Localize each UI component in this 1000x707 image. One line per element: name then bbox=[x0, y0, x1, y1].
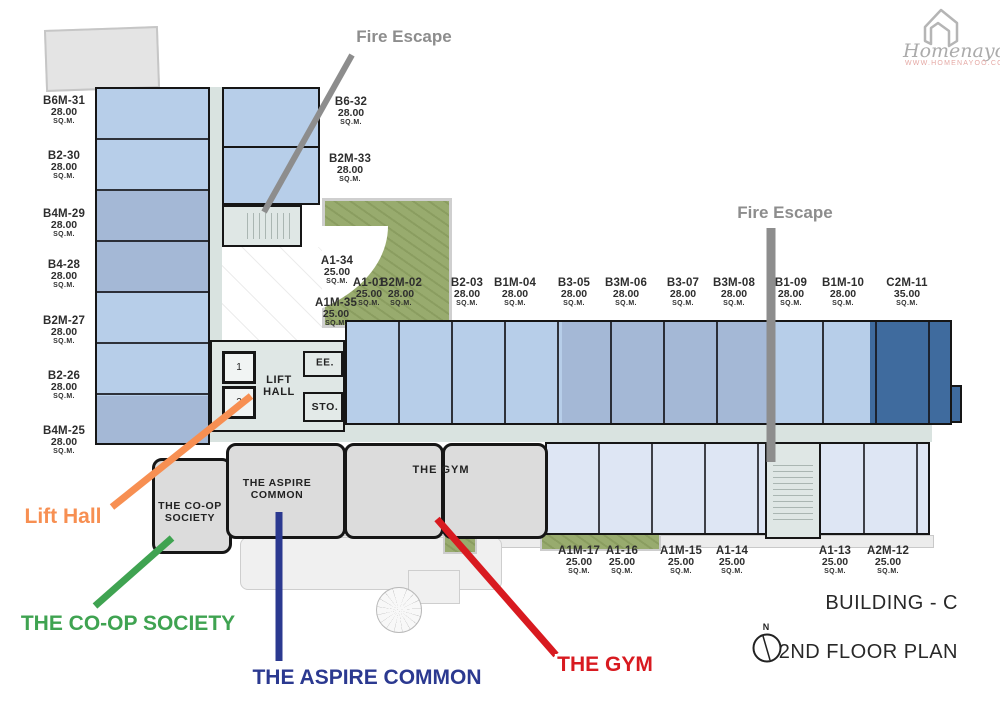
unit-sqm: SQ.M. bbox=[716, 568, 748, 576]
unit-label: B1M-1028.00SQ.M. bbox=[822, 277, 864, 308]
building-title: BUILDING - C bbox=[758, 592, 958, 615]
compass-n-label: N bbox=[763, 622, 770, 632]
unit-label: A1-1325.00SQ.M. bbox=[819, 545, 851, 576]
annotation-coop-society: THE CO-OP SOCIETY bbox=[21, 612, 235, 636]
dark-unit-stub bbox=[950, 385, 962, 423]
unit-label: B1M-0428.00SQ.M. bbox=[494, 277, 536, 308]
lift-hall-label: LIFT HALL bbox=[263, 374, 295, 398]
unit-label: B2-2628.00SQ.M. bbox=[48, 370, 80, 401]
annotation-aspire-common: THE ASPIRE COMMON bbox=[252, 666, 481, 690]
coop-society-label: THE CO-OP SOCIETY bbox=[158, 500, 222, 524]
unit-label: B3-0528.00SQ.M. bbox=[558, 277, 590, 308]
unit-area: 25.00 bbox=[321, 267, 353, 278]
unit-area: 25.00 bbox=[558, 557, 600, 568]
unit-label: B4-2828.00SQ.M. bbox=[48, 259, 80, 290]
unit-label: B2M-2728.00SQ.M. bbox=[43, 315, 85, 346]
annotation-the-gym: THE GYM bbox=[557, 653, 653, 677]
unit-area: 25.00 bbox=[660, 557, 702, 568]
unit-sqm: SQ.M. bbox=[43, 118, 85, 126]
unit-sqm: SQ.M. bbox=[713, 300, 755, 308]
unit-sqm: SQ.M. bbox=[321, 278, 353, 286]
unit-area: 28.00 bbox=[713, 289, 755, 300]
gym-room-b bbox=[442, 443, 548, 539]
annotation-lift-hall: Lift Hall bbox=[25, 505, 102, 529]
unit-label: A1M-1725.00SQ.M. bbox=[558, 545, 600, 576]
unit-area: 28.00 bbox=[822, 289, 864, 300]
unit-label: C2M-1135.00SQ.M. bbox=[886, 277, 927, 308]
aspire-common-label: THE ASPIRE COMMON bbox=[243, 477, 312, 501]
unit-area: 28.00 bbox=[48, 162, 80, 173]
unit-sqm: SQ.M. bbox=[775, 300, 807, 308]
lift-2: 2 bbox=[222, 386, 256, 419]
unit-sqm: SQ.M. bbox=[48, 173, 80, 181]
unit-sqm: SQ.M. bbox=[558, 568, 600, 576]
homenayoo-logo-text: Homenayoo bbox=[903, 40, 1000, 62]
lift-1-label: 1 bbox=[236, 362, 242, 373]
unit-sqm: SQ.M. bbox=[380, 300, 422, 308]
roof-slab bbox=[44, 26, 160, 92]
unit-sqm: SQ.M. bbox=[43, 231, 85, 239]
unit-label: A1-3425.00SQ.M. bbox=[321, 255, 353, 286]
unit-label: B6M-3128.00SQ.M. bbox=[43, 95, 85, 126]
unit-label: A1M-3525.00SQ.M. bbox=[315, 297, 357, 328]
spiral-stair bbox=[376, 587, 422, 633]
sto-label: STO. bbox=[312, 401, 339, 413]
stair-treads bbox=[242, 213, 292, 239]
unit-label: B2-3028.00SQ.M. bbox=[48, 150, 80, 181]
top-stub-units bbox=[222, 87, 320, 205]
unit-label: B2-0328.00SQ.M. bbox=[451, 277, 483, 308]
unit-label: A1-1425.00SQ.M. bbox=[716, 545, 748, 576]
fire-stair-right bbox=[765, 442, 821, 539]
unit-area: 28.00 bbox=[494, 289, 536, 300]
unit-area: 28.00 bbox=[43, 327, 85, 338]
annotation-fire-escape-right: Fire Escape bbox=[737, 203, 832, 223]
unit-area: 28.00 bbox=[335, 108, 367, 119]
unit-sqm: SQ.M. bbox=[667, 300, 699, 308]
horizontal-wing-units bbox=[345, 320, 952, 425]
unit-sqm: SQ.M. bbox=[329, 176, 371, 184]
unit-area: 35.00 bbox=[886, 289, 927, 300]
unit-sqm: SQ.M. bbox=[605, 300, 647, 308]
open-void bbox=[222, 247, 322, 341]
fire-stair-top bbox=[222, 205, 302, 247]
annotation-fire-escape-top: Fire Escape bbox=[356, 27, 451, 47]
bottom-row-units bbox=[545, 442, 930, 535]
left-wing-units bbox=[95, 87, 210, 445]
unit-area: 28.00 bbox=[605, 289, 647, 300]
unit-sqm: SQ.M. bbox=[451, 300, 483, 308]
unit-sqm: SQ.M. bbox=[819, 568, 851, 576]
unit-sqm: SQ.M. bbox=[315, 320, 357, 328]
unit-label: A1M-1525.00SQ.M. bbox=[660, 545, 702, 576]
floor-plan-canvas: 1 2 LIFT HALL EE. STO. THE ASPIRE COMMON… bbox=[0, 0, 1000, 707]
unit-label: B6-3228.00SQ.M. bbox=[335, 96, 367, 127]
homenayoo-url: WWW.HOMENAYOO.COM bbox=[905, 60, 1000, 67]
unit-area: 28.00 bbox=[380, 289, 422, 300]
unit-area: 28.00 bbox=[558, 289, 590, 300]
unit-sqm: SQ.M. bbox=[335, 119, 367, 127]
stair-treads bbox=[773, 460, 813, 523]
unit-label: A1-1625.00SQ.M. bbox=[606, 545, 638, 576]
unit-area: 28.00 bbox=[43, 107, 85, 118]
unit-area: 25.00 bbox=[867, 557, 909, 568]
unit-label: A2M-1225.00SQ.M. bbox=[867, 545, 909, 576]
unit-sqm: SQ.M. bbox=[660, 568, 702, 576]
unit-sqm: SQ.M. bbox=[43, 338, 85, 346]
floor-plan-title: 2ND FLOOR PLAN bbox=[758, 641, 958, 664]
unit-label: B2M-3328.00SQ.M. bbox=[329, 153, 371, 184]
gym-label: THE GYM bbox=[412, 464, 469, 476]
unit-area: 28.00 bbox=[667, 289, 699, 300]
unit-sqm: SQ.M. bbox=[606, 568, 638, 576]
unit-sqm: SQ.M. bbox=[48, 393, 80, 401]
unit-label: B2M-0228.00SQ.M. bbox=[380, 277, 422, 308]
unit-area: 28.00 bbox=[48, 271, 80, 282]
unit-label: B3M-0628.00SQ.M. bbox=[605, 277, 647, 308]
unit-label: B3M-0828.00SQ.M. bbox=[713, 277, 755, 308]
unit-area: 28.00 bbox=[43, 437, 85, 448]
ee-label: EE. bbox=[316, 358, 334, 369]
unit-area: 28.00 bbox=[775, 289, 807, 300]
unit-area: 28.00 bbox=[329, 165, 371, 176]
unit-sqm: SQ.M. bbox=[886, 300, 927, 308]
unit-area: 28.00 bbox=[451, 289, 483, 300]
unit-sqm: SQ.M. bbox=[822, 300, 864, 308]
unit-sqm: SQ.M. bbox=[867, 568, 909, 576]
unit-sqm: SQ.M. bbox=[494, 300, 536, 308]
unit-area: 25.00 bbox=[606, 557, 638, 568]
unit-area: 25.00 bbox=[819, 557, 851, 568]
unit-label: B4M-2528.00SQ.M. bbox=[43, 425, 85, 456]
lift-2-label: 2 bbox=[236, 397, 242, 408]
unit-label: B1-0928.00SQ.M. bbox=[775, 277, 807, 308]
unit-sqm: SQ.M. bbox=[48, 282, 80, 290]
unit-area: 28.00 bbox=[43, 220, 85, 231]
unit-area: 25.00 bbox=[315, 309, 357, 320]
unit-sqm: SQ.M. bbox=[558, 300, 590, 308]
lift-1: 1 bbox=[222, 351, 256, 384]
unit-label: B3-0728.00SQ.M. bbox=[667, 277, 699, 308]
unit-sqm: SQ.M. bbox=[43, 448, 85, 456]
unit-label: B4M-2928.00SQ.M. bbox=[43, 208, 85, 239]
gym-room-a bbox=[344, 443, 444, 539]
unit-area: 25.00 bbox=[716, 557, 748, 568]
unit-area: 28.00 bbox=[48, 382, 80, 393]
